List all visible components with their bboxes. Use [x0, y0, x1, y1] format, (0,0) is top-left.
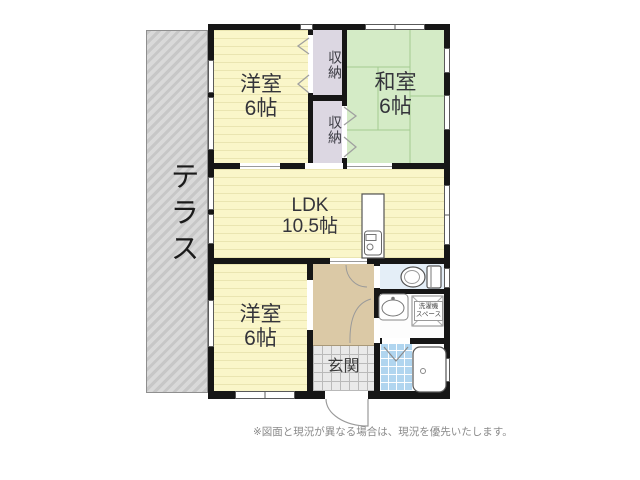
- room-western-bottom-size: 6帖: [214, 327, 307, 351]
- room-western-top-name: 洋室: [214, 73, 308, 97]
- bathroom-tub-side: [412, 344, 444, 391]
- room-ldk-size: 10.5帖: [230, 216, 390, 237]
- room-ldk-name: LDK: [230, 195, 390, 216]
- room-japanese-label: 和室 6帖: [347, 71, 444, 118]
- window-bath: [444, 358, 450, 382]
- window-japanese-right-2: [444, 95, 450, 130]
- hall-entrance-divider: [313, 345, 374, 346]
- room-western-top-size: 6帖: [214, 97, 308, 121]
- opening-west-bottom-hall: [307, 280, 313, 330]
- entrance-label: 玄関: [313, 358, 374, 376]
- window-ldk-left-1: [208, 177, 214, 210]
- room-western-bottom-label: 洋室 6帖: [214, 303, 307, 350]
- window-top-japanese: [365, 24, 425, 30]
- opening-hall-toilet: [374, 266, 380, 288]
- room-western-bottom-name: 洋室: [214, 303, 307, 327]
- opening-entrance-door: [325, 391, 368, 399]
- room-western-top-label: 洋室 6帖: [214, 73, 308, 120]
- closet-upper-label: 収納: [313, 45, 342, 85]
- hallway: [313, 264, 374, 345]
- room-japanese-name: 和室: [347, 71, 444, 95]
- window-ldk-left-2: [208, 214, 214, 244]
- window-top-closet: [300, 24, 313, 30]
- room-japanese-size: 6帖: [347, 95, 444, 119]
- laundry-line2: スペース: [415, 311, 442, 319]
- entrance-door-arc-icon: [326, 399, 368, 426]
- laundry-line1: 洗濯機: [415, 303, 442, 311]
- terrace-area: テラス: [146, 30, 208, 393]
- terrace-label: テラス: [161, 161, 203, 269]
- opening-hall-washroom: [374, 318, 380, 343]
- opening-under-closets: [305, 163, 343, 169]
- disclaimer-text: ※図面と現況が異なる場合は、現況を優先いたします。: [253, 427, 513, 439]
- room-ldk-label: LDK 10.5帖: [230, 195, 390, 238]
- floorplan-canvas: テラス: [0, 0, 640, 480]
- bathroom-tiled-floor: [380, 344, 412, 391]
- toilet-room: [380, 264, 444, 289]
- closet-lower-label: 収納: [313, 110, 342, 150]
- slide-door-line-2: [347, 166, 392, 167]
- window-toilet: [444, 268, 450, 288]
- laundry-space-label: 洗濯機 スペース: [414, 301, 443, 321]
- slide-door-line-1: [240, 166, 280, 167]
- slide-door-line-3: [330, 261, 367, 262]
- opening-washroom-bath: [382, 338, 410, 344]
- window-bottom-west: [235, 391, 295, 399]
- window-japanese-right-1: [444, 48, 450, 73]
- window-ldk-right: [444, 185, 450, 245]
